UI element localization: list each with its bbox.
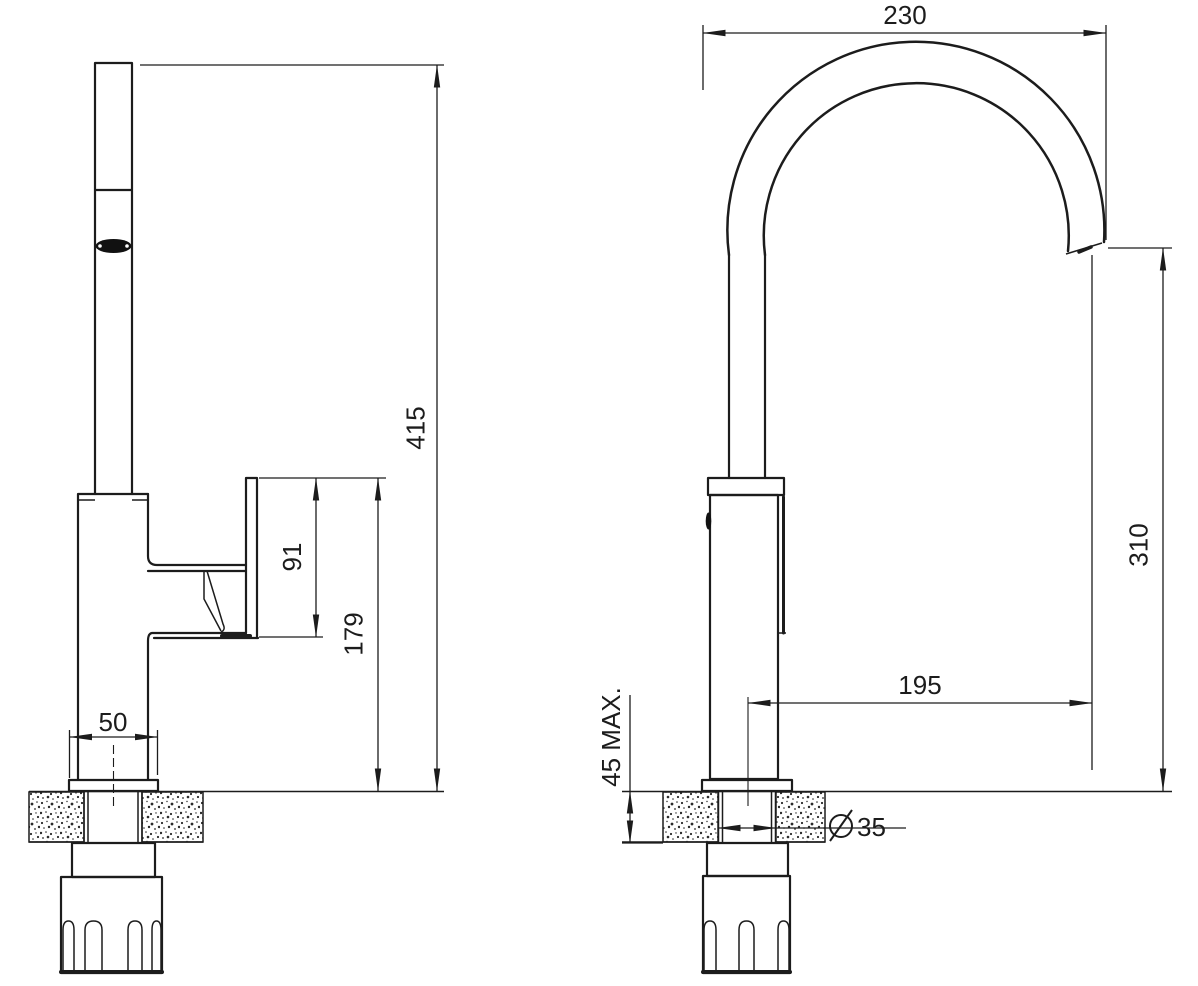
front-mounting-nut (703, 876, 790, 973)
front-counter-hatch-left (663, 792, 718, 842)
dim-deck-thickness-45max: 45 MAX. (596, 687, 663, 843)
deck-thickness-label: 45 MAX. (596, 687, 626, 787)
total-height-label: 415 (401, 406, 431, 449)
side-collar (72, 843, 155, 877)
side-handle-lever (246, 478, 257, 638)
aerator-highlight-left (98, 244, 102, 248)
front-body (706, 478, 786, 779)
side-counter-hatch-left (29, 792, 84, 842)
side-mounting-nut (61, 877, 162, 973)
handle-height-label: 91 (277, 543, 307, 572)
hole-diameter-label: 35 (857, 812, 886, 842)
dim-base-width-50: 50 (70, 707, 158, 778)
spout-reach-label: 230 (883, 0, 926, 30)
spout-outlet-mark (1079, 247, 1091, 252)
outlet-height-label: 310 (1124, 523, 1154, 566)
front-base-plate (702, 780, 792, 791)
side-base (29, 745, 444, 973)
handle-to-deck-label: 179 (339, 612, 369, 655)
set-screw (706, 513, 712, 530)
faucet-technical-drawing: 415 91 179 50 230 310 (0, 0, 1198, 986)
side-spout-column (95, 63, 132, 494)
diameter-icon (830, 810, 852, 841)
base-width-label: 50 (99, 707, 128, 737)
front-collar-top (708, 478, 784, 495)
side-counter-hatch-right (142, 792, 203, 842)
dim-spout-projection-195: 195 (748, 255, 1092, 770)
front-counter-hatch-right (776, 792, 825, 842)
drawing-canvas: 415 91 179 50 230 310 (0, 0, 1198, 986)
side-view (29, 63, 444, 973)
front-view (622, 42, 1172, 973)
front-collar (707, 843, 788, 876)
front-shank (719, 792, 776, 842)
dim-total-height-415: 415 (140, 65, 444, 791)
spout-projection-label: 195 (898, 670, 941, 700)
front-gooseneck-spout (727, 42, 1104, 478)
front-base (622, 697, 1172, 973)
dimension-annotations: 415 91 179 50 230 310 (70, 0, 1173, 843)
side-handle-wedge (204, 571, 250, 636)
dim-outlet-height-310: 310 (1108, 248, 1172, 791)
dim-handle-to-deck-179: 179 (339, 478, 379, 791)
aerator-highlight-right (125, 244, 129, 248)
